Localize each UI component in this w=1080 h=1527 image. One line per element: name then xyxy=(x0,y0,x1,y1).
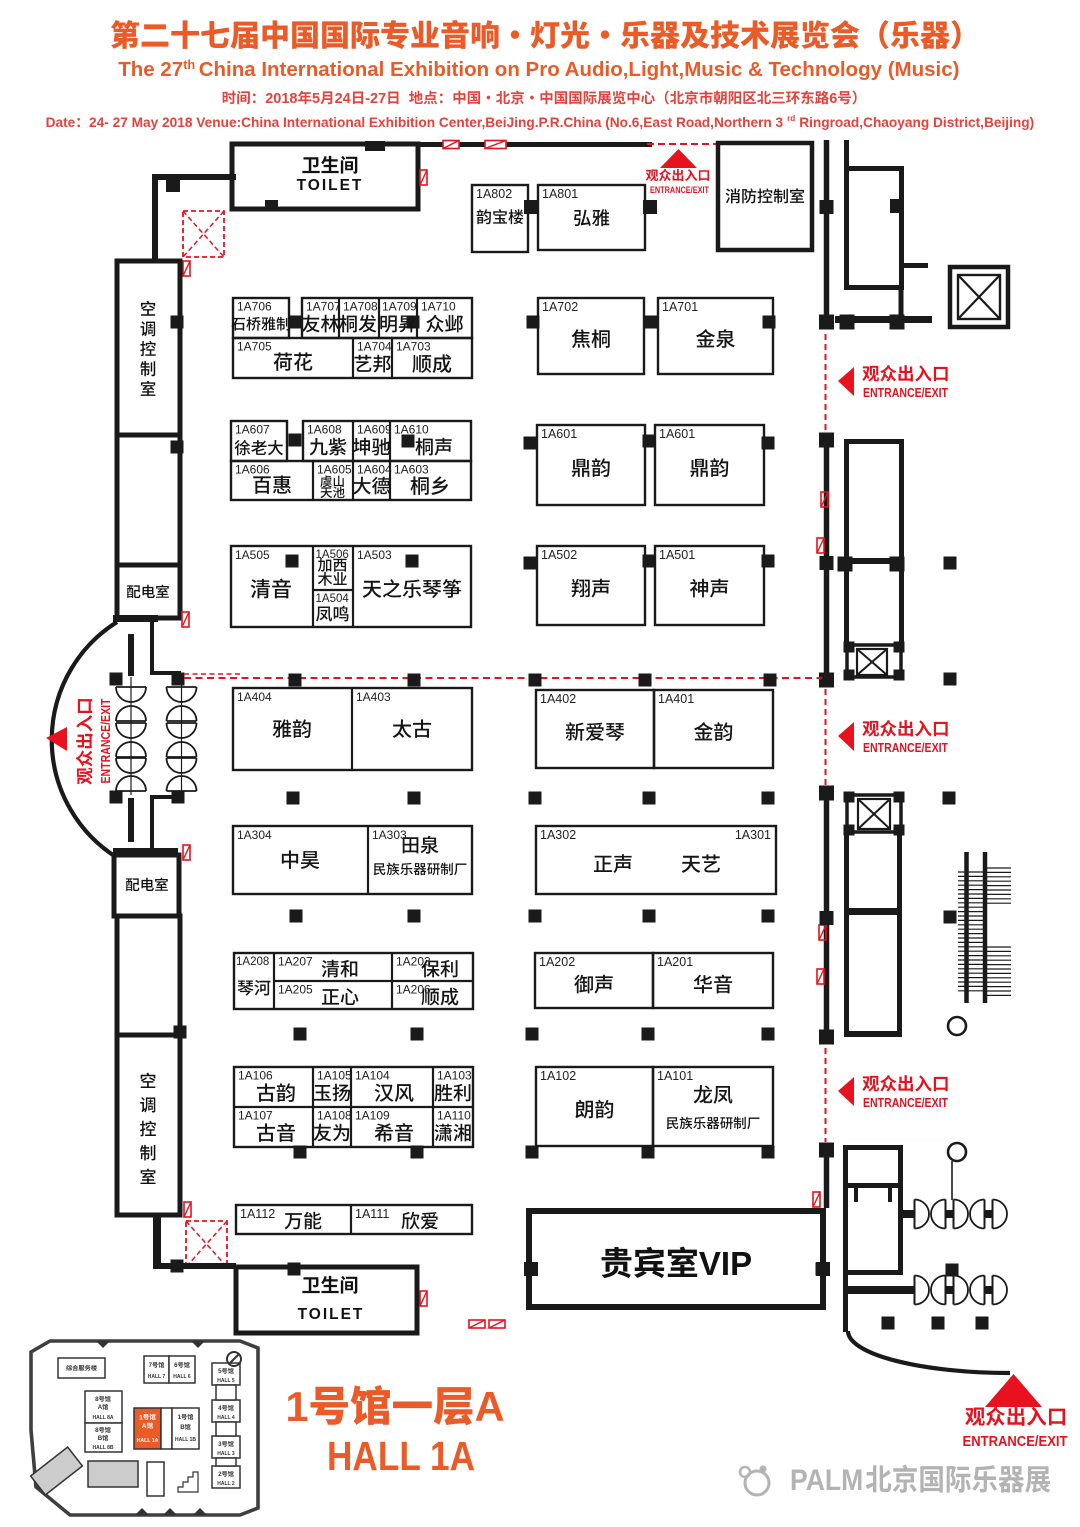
svg-text:HALL 7: HALL 7 xyxy=(148,1374,166,1380)
svg-text:1A301: 1A301 xyxy=(735,828,771,842)
svg-text:24: 24 xyxy=(335,91,351,107)
svg-text:1A701: 1A701 xyxy=(662,300,698,314)
svg-text:1A302: 1A302 xyxy=(540,828,576,842)
svg-text:1A107: 1A107 xyxy=(238,1109,273,1123)
svg-text:HALL 8B: HALL 8B xyxy=(92,1445,113,1451)
svg-text:The 27: The 27 xyxy=(118,58,183,81)
svg-text:1A708: 1A708 xyxy=(343,300,378,314)
svg-text:7: 7 xyxy=(149,1362,153,1369)
svg-text:1A703: 1A703 xyxy=(396,340,431,354)
svg-text:B: B xyxy=(180,1424,185,1431)
svg-text:6: 6 xyxy=(829,91,837,107)
svg-text:B: B xyxy=(98,1435,103,1442)
svg-text:rd: rd xyxy=(787,114,795,123)
svg-text:VIP: VIP xyxy=(699,1245,752,1282)
svg-text:1A801: 1A801 xyxy=(542,187,578,201)
svg-text:1A202: 1A202 xyxy=(539,955,575,969)
svg-text:ENTRANCE/EXIT: ENTRANCE/EXIT xyxy=(863,741,948,755)
svg-text:1A205: 1A205 xyxy=(278,983,313,997)
svg-text:1A608: 1A608 xyxy=(307,423,342,437)
svg-text:PALM: PALM xyxy=(790,1464,863,1497)
svg-text:1A601: 1A601 xyxy=(659,427,695,441)
svg-text:HALL 3: HALL 3 xyxy=(217,1451,235,1457)
svg-text:1A102: 1A102 xyxy=(540,1069,576,1083)
svg-text:1A207: 1A207 xyxy=(278,955,313,969)
svg-text:1: 1 xyxy=(286,1383,309,1430)
svg-text:ENTRANCE/EXIT: ENTRANCE/EXIT xyxy=(963,1434,1068,1450)
svg-text:1A404: 1A404 xyxy=(237,690,272,704)
svg-text:1A705: 1A705 xyxy=(237,340,272,354)
svg-text:5: 5 xyxy=(312,91,320,107)
svg-text:1A603: 1A603 xyxy=(394,463,429,477)
svg-text:Ringroad,Chaoyang District,Bei: Ringroad,Chaoyang District,Beijing) xyxy=(799,115,1034,130)
svg-text:24- 27 May 2018 Venue:China In: 24- 27 May 2018 Venue:China Internationa… xyxy=(89,115,784,130)
svg-text:1A503: 1A503 xyxy=(357,548,392,562)
svg-text:1A610: 1A610 xyxy=(394,423,429,437)
svg-text:HALL 8A: HALL 8A xyxy=(92,1415,113,1421)
svg-text:ENTRANCE/EXIT: ENTRANCE/EXIT xyxy=(650,185,709,195)
svg-text:1A504: 1A504 xyxy=(316,593,350,605)
svg-text:ENTRANCE/EXIT: ENTRANCE/EXIT xyxy=(863,1096,948,1110)
svg-text:1A104: 1A104 xyxy=(355,1069,390,1083)
svg-text:1A304: 1A304 xyxy=(237,828,272,842)
svg-text:1A707: 1A707 xyxy=(306,300,341,314)
svg-text:2018: 2018 xyxy=(265,91,297,107)
svg-text:1A607: 1A607 xyxy=(235,423,270,437)
svg-text:5: 5 xyxy=(218,1368,222,1375)
svg-text:4: 4 xyxy=(218,1405,222,1412)
svg-text:1A802: 1A802 xyxy=(476,187,512,201)
svg-text:A: A xyxy=(475,1383,505,1430)
svg-text:1A208: 1A208 xyxy=(236,956,269,968)
svg-text:TOILET: TOILET xyxy=(298,1306,365,1323)
svg-text:1A706: 1A706 xyxy=(237,300,272,314)
svg-text:1A710: 1A710 xyxy=(421,300,456,314)
svg-text:3: 3 xyxy=(218,1441,222,1448)
svg-text:HALL 1B: HALL 1B xyxy=(175,1437,196,1443)
svg-text:1A604: 1A604 xyxy=(357,463,392,477)
svg-text:1A601: 1A601 xyxy=(541,427,577,441)
svg-text:TOILET: TOILET xyxy=(297,177,364,194)
svg-text:HALL 4: HALL 4 xyxy=(217,1415,235,1421)
svg-text:1A101: 1A101 xyxy=(657,1069,693,1083)
svg-text:1A108: 1A108 xyxy=(317,1109,352,1123)
svg-text:1A505: 1A505 xyxy=(235,548,270,562)
svg-text:th: th xyxy=(183,57,195,72)
svg-text:1: 1 xyxy=(139,1414,143,1421)
svg-text:1A112: 1A112 xyxy=(240,1207,275,1221)
svg-text:1A704: 1A704 xyxy=(357,340,392,354)
svg-text:1: 1 xyxy=(178,1414,182,1421)
svg-text:8: 8 xyxy=(95,1427,99,1434)
svg-text:1A501: 1A501 xyxy=(659,548,695,562)
svg-text:ENTRANCE/EXIT: ENTRANCE/EXIT xyxy=(863,386,948,400)
svg-text:1A606: 1A606 xyxy=(235,463,270,477)
svg-text:1A403: 1A403 xyxy=(356,690,391,704)
svg-text:1A109: 1A109 xyxy=(355,1109,390,1123)
svg-text:1A709: 1A709 xyxy=(382,300,417,314)
svg-text:HALL 2: HALL 2 xyxy=(217,1481,235,1487)
svg-text:1A110: 1A110 xyxy=(437,1109,471,1123)
svg-text:1A303: 1A303 xyxy=(372,828,407,842)
svg-text:1A111: 1A111 xyxy=(355,1207,389,1221)
svg-text:1A702: 1A702 xyxy=(542,300,578,314)
svg-text:A: A xyxy=(98,1404,103,1411)
svg-text:1A609: 1A609 xyxy=(357,423,392,437)
svg-text:China International Exhibition: China International Exhibition on Pro Au… xyxy=(199,58,960,81)
svg-text:1A605: 1A605 xyxy=(317,463,352,477)
svg-text:HALL 1A: HALL 1A xyxy=(327,1433,475,1479)
svg-text:2: 2 xyxy=(218,1471,222,1478)
svg-text:1A402: 1A402 xyxy=(540,692,576,706)
svg-text:1A106: 1A106 xyxy=(238,1069,273,1083)
svg-text:A: A xyxy=(142,1423,147,1430)
svg-text:1A401: 1A401 xyxy=(658,692,694,706)
svg-text:1A502: 1A502 xyxy=(541,548,577,562)
svg-text:6: 6 xyxy=(174,1362,178,1369)
svg-text:ENTRANCE/EXIT: ENTRANCE/EXIT xyxy=(99,698,113,783)
svg-text:HALL 1A: HALL 1A xyxy=(137,1438,159,1444)
svg-text:1A201: 1A201 xyxy=(657,955,693,969)
svg-text:1A105: 1A105 xyxy=(317,1069,352,1083)
svg-text:8: 8 xyxy=(95,1396,99,1403)
svg-text:Date: Date xyxy=(46,115,76,130)
svg-text:1A103: 1A103 xyxy=(437,1069,472,1083)
svg-text:HALL 5: HALL 5 xyxy=(217,1378,235,1384)
svg-text:-27: -27 xyxy=(365,91,386,107)
svg-text:HALL 6: HALL 6 xyxy=(173,1374,191,1380)
